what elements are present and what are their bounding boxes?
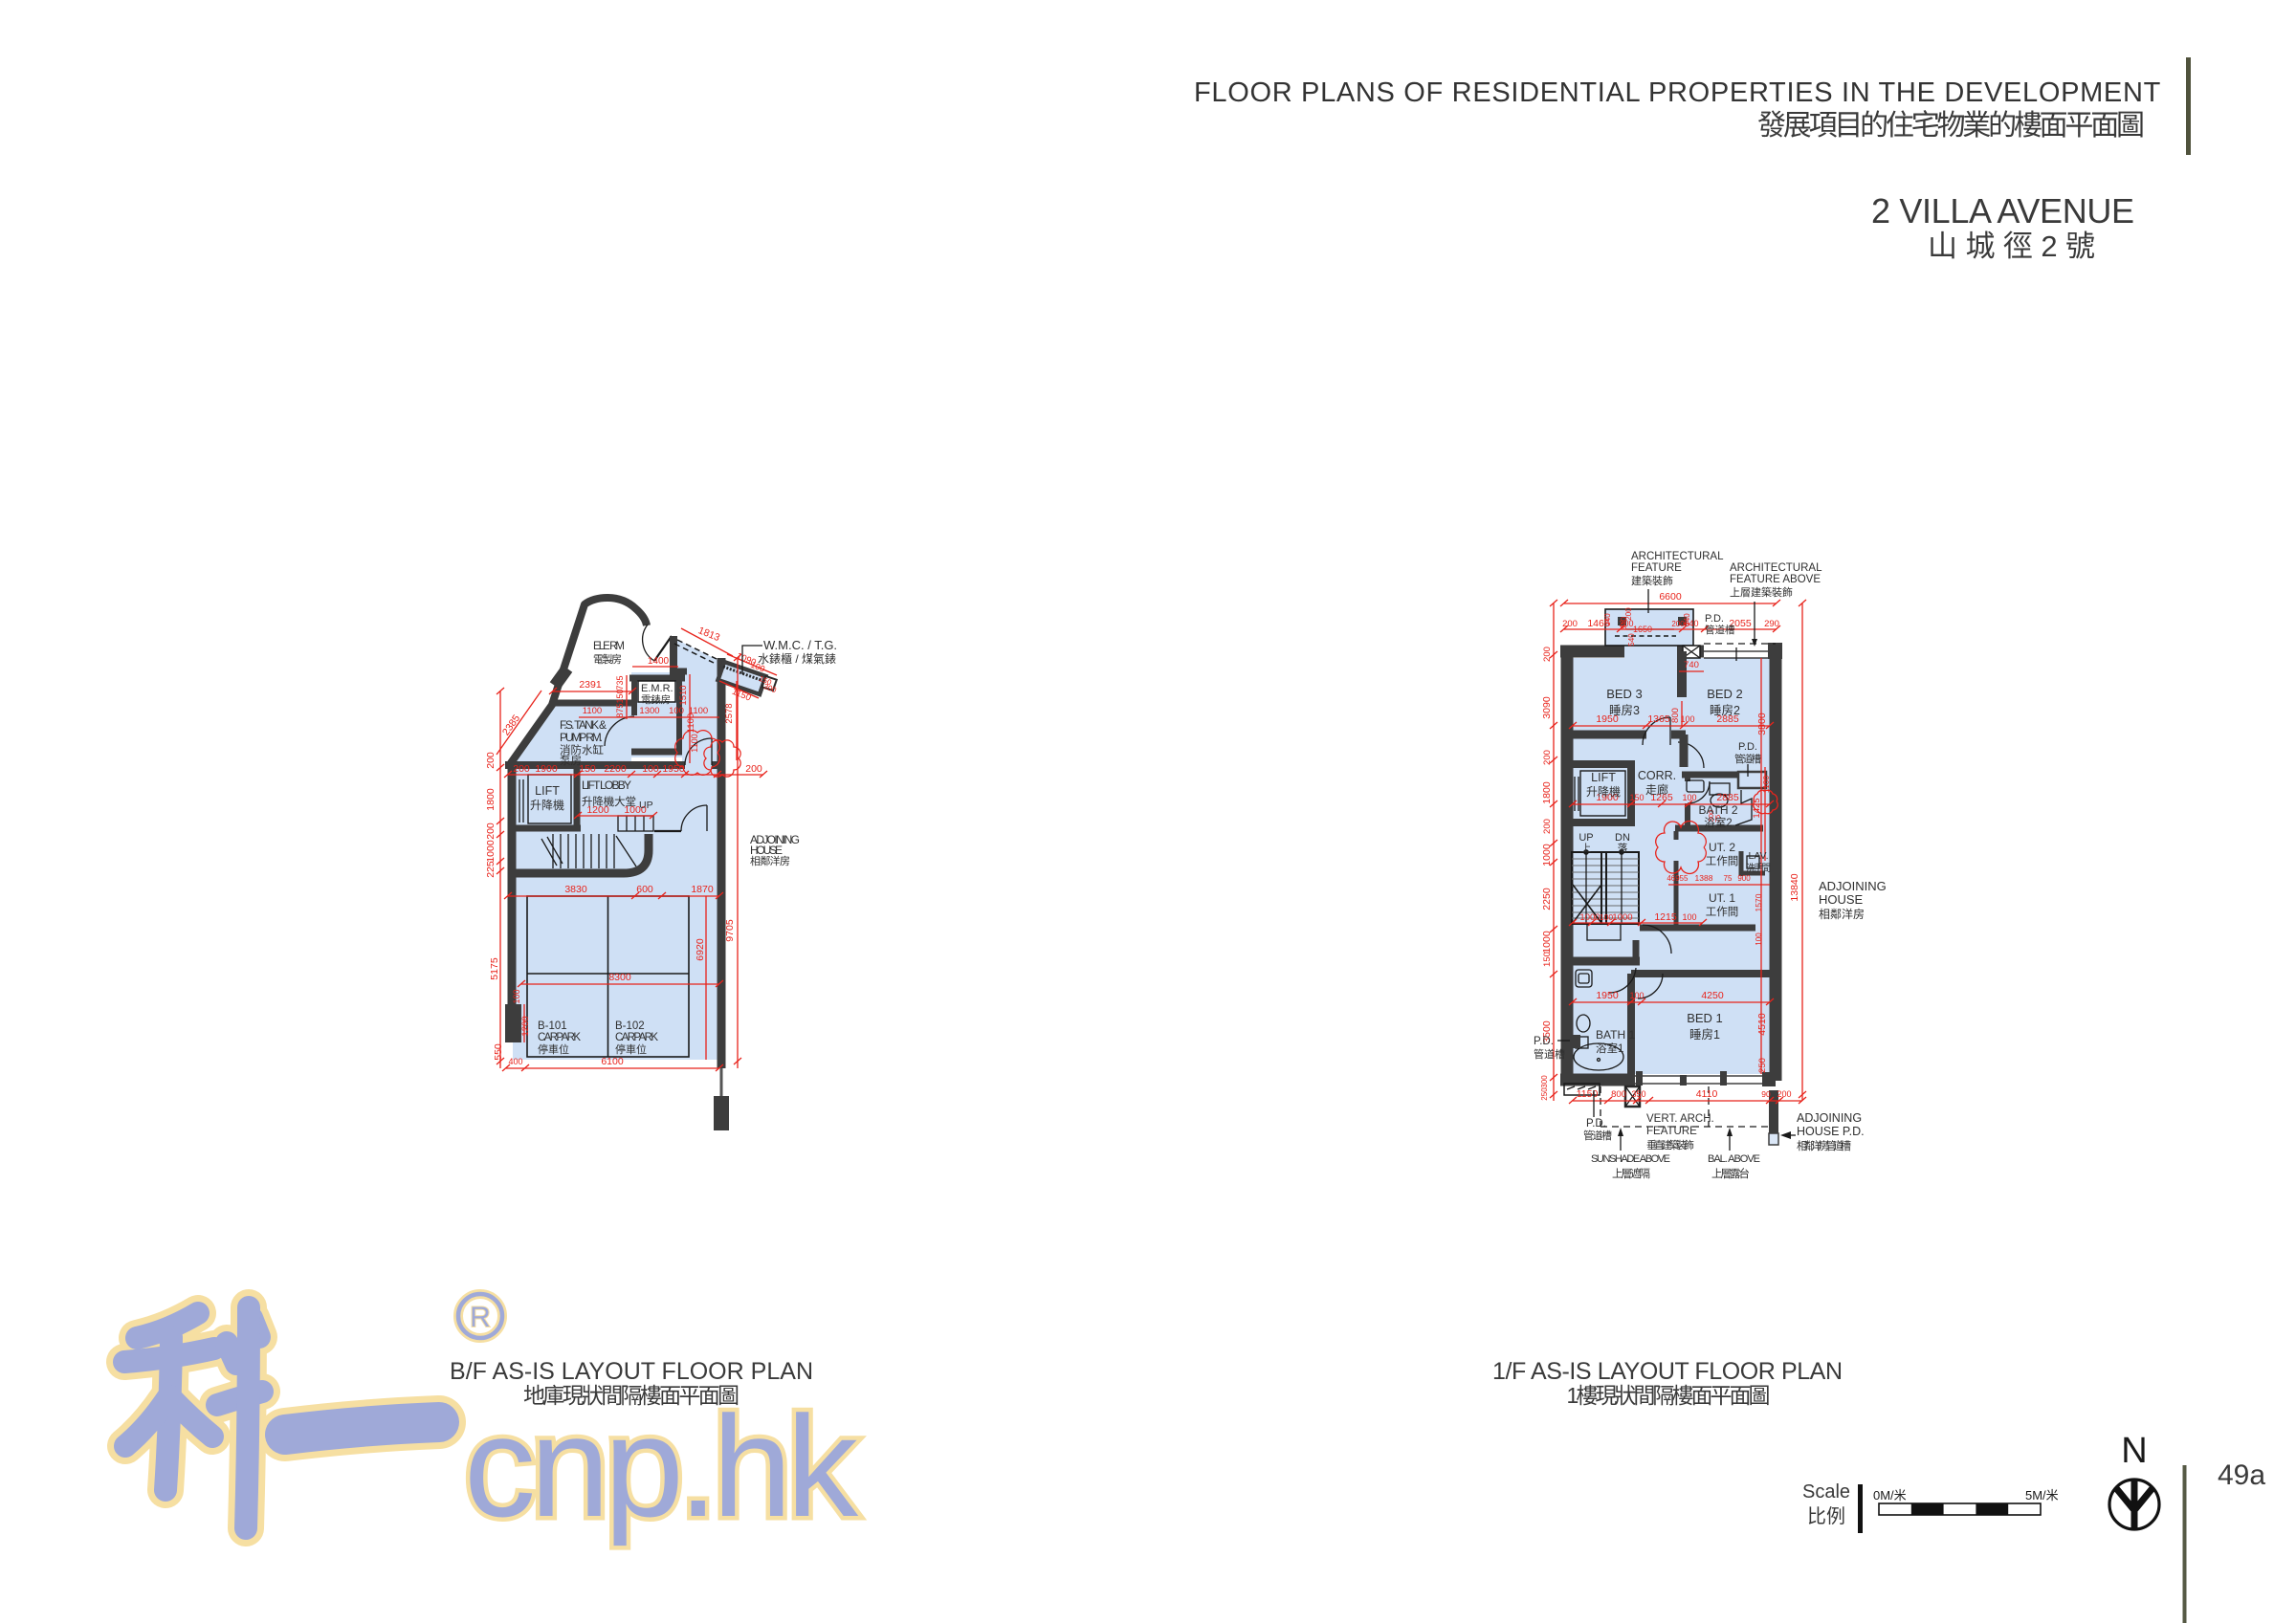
- svg-text:1000: 1000: [485, 840, 497, 863]
- svg-text:停車位: 停車位: [538, 1042, 569, 1056]
- svg-text:地庫現狀間隔樓面平面圖: 地庫現狀間隔樓面平面圖: [523, 1383, 740, 1408]
- svg-text:100: 100: [1682, 793, 1696, 802]
- svg-text:1425: 1425: [1752, 798, 1762, 818]
- svg-text:上層遮隔: 上層遮隔: [1612, 1167, 1650, 1180]
- svg-text:100: 100: [669, 706, 684, 716]
- svg-text:走廊: 走廊: [1645, 782, 1668, 797]
- svg-text:900: 900: [1737, 874, 1751, 883]
- svg-text:550: 550: [493, 1043, 504, 1061]
- svg-text:電錶房: 電錶房: [641, 693, 671, 706]
- svg-text:340: 340: [1603, 613, 1612, 626]
- svg-text:P.D.: P.D.: [1586, 1118, 1606, 1130]
- svg-text:1100: 1100: [690, 734, 699, 752]
- svg-text:1800: 1800: [1541, 781, 1553, 804]
- svg-text:浴室2: 浴室2: [1704, 816, 1732, 829]
- svg-text:1365: 1365: [1647, 713, 1670, 725]
- svg-text:ARCHITECTURAL: ARCHITECTURAL: [1730, 562, 1822, 574]
- svg-text:600: 600: [636, 884, 653, 895]
- svg-text:2385: 2385: [500, 713, 522, 737]
- svg-text:200: 200: [485, 822, 497, 840]
- svg-text:1300: 1300: [639, 706, 659, 716]
- svg-text:浴室1: 浴室1: [1596, 1042, 1623, 1055]
- svg-text:FEATURE: FEATURE: [1631, 562, 1682, 574]
- svg-text:250: 250: [1757, 1058, 1768, 1073]
- svg-text:1100: 1100: [1761, 776, 1771, 794]
- svg-text:UP: UP: [639, 800, 653, 811]
- svg-text:4510: 4510: [1756, 1013, 1768, 1036]
- svg-text:管道槽: 管道槽: [1534, 1047, 1565, 1061]
- svg-text:升降機: 升降機: [1586, 784, 1621, 799]
- svg-text:1650: 1650: [1633, 625, 1652, 634]
- svg-text:UT. 1: UT. 1: [1709, 891, 1735, 905]
- svg-text:875: 875: [615, 703, 625, 717]
- svg-text:相鄰洋房: 相鄰洋房: [750, 854, 790, 867]
- svg-text:Scale: Scale: [1802, 1481, 1850, 1502]
- svg-text:1950: 1950: [662, 763, 685, 775]
- svg-text:1100: 1100: [583, 706, 602, 716]
- svg-text:90: 90: [1761, 1089, 1771, 1099]
- svg-text:1000: 1000: [1541, 844, 1553, 866]
- svg-text:F.S. TANK &: F.S. TANK &: [560, 718, 607, 732]
- svg-text:55: 55: [1680, 874, 1689, 883]
- svg-text:200: 200: [1562, 619, 1578, 629]
- svg-text:1570: 1570: [1754, 893, 1763, 911]
- svg-text:4110: 4110: [1696, 1088, 1718, 1100]
- svg-text:1510: 1510: [678, 685, 689, 705]
- svg-text:300: 300: [1540, 1075, 1549, 1088]
- svg-text:800: 800: [1670, 708, 1681, 723]
- svg-text:W.M.C. / T.G.: W.M.C. / T.G.: [763, 638, 837, 652]
- svg-text:1800: 1800: [485, 788, 497, 811]
- svg-text:13840: 13840: [1789, 873, 1800, 901]
- svg-text:升降機: 升降機: [530, 798, 564, 812]
- svg-text:1150: 1150: [1577, 1088, 1599, 1100]
- svg-text:100: 100: [1600, 912, 1613, 922]
- svg-text:469: 469: [1667, 874, 1680, 883]
- svg-text:150: 150: [1542, 952, 1553, 967]
- svg-text:落: 落: [1618, 843, 1628, 854]
- svg-text:3830: 3830: [564, 884, 587, 895]
- svg-text:540: 540: [1627, 633, 1636, 647]
- svg-text:睡房2: 睡房2: [1710, 703, 1740, 717]
- svg-text:FEATURE: FEATURE: [1646, 1126, 1697, 1137]
- svg-text:200: 200: [513, 763, 530, 775]
- svg-text:2885: 2885: [1716, 792, 1739, 803]
- svg-text:1樓現狀間隔樓面平面圖: 1樓現狀間隔樓面平面圖: [1567, 1383, 1771, 1408]
- svg-text:上: 上: [1581, 843, 1592, 854]
- svg-text:5175: 5175: [489, 957, 500, 980]
- svg-text:CARPARK: CARPARK: [538, 1032, 581, 1043]
- svg-text:山城徑2號: 山城徑2號: [1928, 230, 2095, 263]
- svg-text:LIFT: LIFT: [535, 784, 560, 798]
- svg-text:5M/米: 5M/米: [2025, 1488, 2059, 1502]
- svg-text:LIFT: LIFT: [1591, 771, 1616, 784]
- svg-text:睡房3: 睡房3: [1609, 703, 1640, 717]
- svg-text:洗手間: 洗手間: [1746, 862, 1771, 874]
- svg-text:49a: 49a: [2218, 1459, 2265, 1491]
- svg-text:HOUSE P.D.: HOUSE P.D.: [1797, 1125, 1865, 1138]
- svg-text:75: 75: [1724, 874, 1733, 883]
- svg-text:3090: 3090: [1541, 696, 1553, 719]
- svg-text:B/F AS-IS LAYOUT FLOOR PLAN: B/F AS-IS LAYOUT FLOOR PLAN: [450, 1358, 813, 1385]
- svg-text:200: 200: [1542, 647, 1553, 662]
- svg-text:發展項目的住宅物業的樓面平面圖: 發展項目的住宅物業的樓面平面圖: [1757, 110, 2145, 142]
- svg-text:100: 100: [1755, 932, 1763, 946]
- svg-text:管道槽: 管道槽: [1583, 1129, 1612, 1142]
- svg-text:停車位: 停車位: [615, 1042, 647, 1056]
- svg-text:管道槽: 管道槽: [1705, 624, 1735, 636]
- svg-text:BAL. ABOVE: BAL. ABOVE: [1708, 1153, 1760, 1165]
- svg-text:工作間: 工作間: [1706, 906, 1739, 918]
- svg-text:250: 250: [1540, 1087, 1549, 1101]
- svg-text:BED 1: BED 1: [1687, 1011, 1723, 1025]
- svg-text:P.D.: P.D.: [1705, 613, 1724, 625]
- svg-text:800: 800: [1611, 1089, 1626, 1100]
- svg-text:340: 340: [1683, 613, 1691, 626]
- svg-text:BATH 2: BATH 2: [1698, 803, 1737, 817]
- svg-text:1950: 1950: [1596, 990, 1619, 1001]
- svg-text:400: 400: [508, 1057, 522, 1066]
- svg-text:BED 2: BED 2: [1707, 687, 1743, 701]
- svg-text:B-102: B-102: [615, 1020, 645, 1032]
- svg-text:290: 290: [1764, 619, 1779, 629]
- svg-text:上層建築裝飾: 上層建築裝飾: [1730, 585, 1793, 599]
- svg-text:100: 100: [642, 763, 659, 775]
- svg-text:電製房: 電製房: [593, 652, 622, 666]
- svg-text:E.M.R.: E.M.R.: [641, 683, 673, 694]
- svg-text:建築裝飾: 建築裝飾: [1631, 574, 1673, 587]
- svg-text:200: 200: [1542, 750, 1553, 765]
- svg-text:P.D.: P.D.: [1534, 1036, 1554, 1047]
- svg-text:2578: 2578: [724, 703, 735, 723]
- svg-text:ARCHITECTURAL: ARCHITECTURAL: [1631, 551, 1724, 562]
- svg-text:1870: 1870: [691, 884, 714, 895]
- svg-text:1/F AS-IS LAYOUT FLOOR PLAN: 1/F AS-IS LAYOUT FLOOR PLAN: [1492, 1358, 1843, 1385]
- svg-text:2250: 2250: [1541, 888, 1553, 910]
- svg-text:3800: 3800: [1756, 713, 1768, 735]
- svg-text:2 VILLA AVENUE: 2 VILLA AVENUE: [1871, 191, 2134, 230]
- svg-text:350: 350: [1631, 1089, 1645, 1099]
- svg-text:工作間: 工作間: [1706, 855, 1739, 867]
- svg-text:100: 100: [1629, 991, 1644, 1000]
- svg-text:1215: 1215: [1654, 911, 1677, 923]
- svg-text:740: 740: [1684, 660, 1699, 670]
- svg-text:CARPARK: CARPARK: [615, 1032, 658, 1043]
- svg-text:N: N: [2121, 1431, 2147, 1471]
- svg-text:PUMP RM.: PUMP RM.: [560, 731, 603, 744]
- svg-text:2200: 2200: [604, 763, 627, 775]
- svg-text:9705: 9705: [724, 919, 736, 942]
- svg-text:消防水缸: 消防水缸: [560, 743, 604, 757]
- svg-text:HOUSE: HOUSE: [750, 844, 783, 857]
- svg-text:100: 100: [512, 989, 521, 1003]
- svg-text:200: 200: [1777, 1089, 1791, 1099]
- svg-text:100: 100: [1682, 912, 1696, 922]
- svg-text:比例: 比例: [1807, 1505, 1845, 1527]
- svg-text:LAV.: LAV.: [1748, 850, 1768, 862]
- svg-text:LIFT LOBBY: LIFT LOBBY: [582, 779, 631, 792]
- svg-text:BATH 1: BATH 1: [1596, 1028, 1635, 1042]
- svg-text:2391: 2391: [579, 679, 602, 691]
- svg-text:150: 150: [615, 689, 625, 703]
- svg-text:1000: 1000: [1541, 931, 1553, 954]
- svg-text:200: 200: [1542, 819, 1553, 834]
- svg-text:水錶櫃 / 煤氣錶: 水錶櫃 / 煤氣錶: [758, 651, 836, 666]
- svg-text:225: 225: [485, 861, 497, 878]
- svg-text:垂直建築裝飾: 垂直建築裝飾: [1646, 1138, 1694, 1151]
- svg-text:FEATURE ABOVE: FEATURE ABOVE: [1730, 574, 1821, 585]
- svg-text:6100: 6100: [601, 1056, 624, 1067]
- svg-text:100: 100: [1680, 714, 1694, 724]
- svg-text:340: 340: [1619, 617, 1628, 630]
- svg-text:6920: 6920: [695, 938, 706, 961]
- svg-text:升降機大堂: 升降機大堂: [582, 795, 636, 808]
- svg-text:睡房1: 睡房1: [1689, 1027, 1720, 1042]
- svg-text:ADJOINING: ADJOINING: [1819, 879, 1887, 893]
- svg-text:200: 200: [745, 763, 762, 775]
- svg-text:泵房: 泵房: [560, 755, 582, 767]
- svg-text:735: 735: [615, 675, 625, 690]
- svg-text:1388: 1388: [1695, 873, 1713, 883]
- svg-text:管道槽: 管道槽: [1734, 753, 1762, 765]
- svg-text:1400: 1400: [648, 656, 670, 667]
- svg-text:150: 150: [1629, 793, 1644, 802]
- svg-text:6600: 6600: [1659, 591, 1682, 603]
- svg-text:HOUSE: HOUSE: [1819, 892, 1864, 907]
- svg-text:1900: 1900: [535, 763, 558, 775]
- svg-text:ELE RM: ELE RM: [593, 641, 625, 652]
- svg-text:BED 3: BED 3: [1606, 687, 1643, 701]
- svg-text:8300: 8300: [608, 972, 631, 983]
- svg-text:UT. 2: UT. 2: [1709, 841, 1735, 854]
- svg-text:上層露台: 上層露台: [1711, 1167, 1750, 1180]
- svg-text:相鄰洋房管道槽: 相鄰洋房管道槽: [1797, 1139, 1852, 1152]
- svg-text:1813: 1813: [696, 625, 721, 644]
- svg-text:R: R: [470, 1302, 491, 1333]
- svg-text:200: 200: [485, 752, 497, 769]
- svg-text:1000: 1000: [1579, 912, 1600, 923]
- svg-text:VERT. ARCH.: VERT. ARCH.: [1646, 1113, 1714, 1125]
- svg-text:SUNSHADE ABOVE: SUNSHADE ABOVE: [1591, 1153, 1670, 1165]
- svg-text:1000: 1000: [1612, 912, 1632, 923]
- svg-text:相鄰洋房: 相鄰洋房: [1819, 907, 1865, 921]
- svg-text:0M/米: 0M/米: [1873, 1488, 1907, 1502]
- svg-text:cnp.hk: cnp.hk: [464, 1386, 859, 1546]
- svg-text:1100: 1100: [686, 713, 696, 733]
- svg-text:P.D.: P.D.: [1738, 741, 1757, 753]
- svg-text:B-101: B-101: [538, 1020, 567, 1032]
- svg-text:CORR.: CORR.: [1638, 769, 1676, 782]
- svg-text:FLOOR PLANS OF RESIDENTIAL PRO: FLOOR PLANS OF RESIDENTIAL PROPERTIES IN…: [1194, 77, 2161, 108]
- svg-text:4250: 4250: [1701, 990, 1724, 1001]
- svg-text:ADJOINING: ADJOINING: [1797, 1111, 1862, 1125]
- svg-text:1200: 1200: [520, 1016, 531, 1036]
